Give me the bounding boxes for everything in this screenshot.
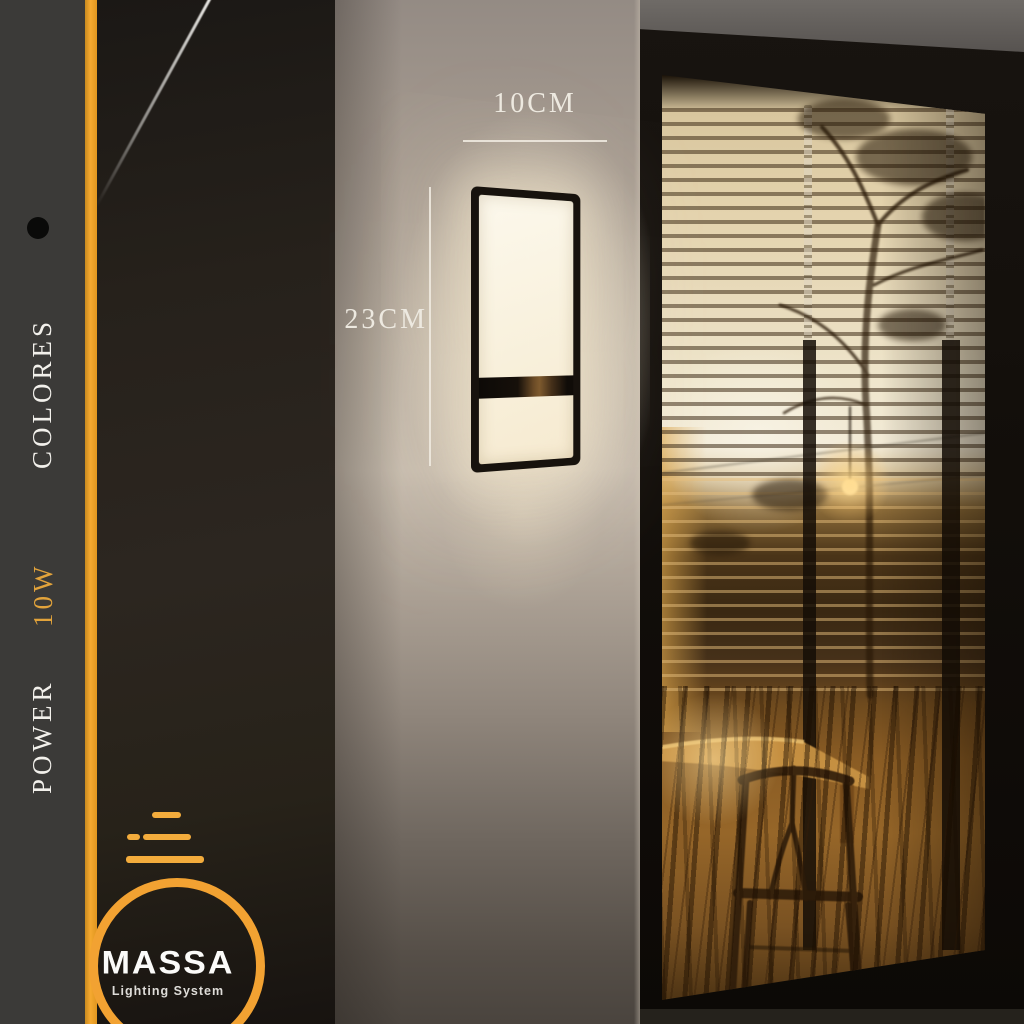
left-sidebar <box>0 0 85 1024</box>
accent-stripe <box>85 0 97 1024</box>
brand-tagline: Lighting System <box>86 984 250 998</box>
power-value: 10W <box>28 552 59 638</box>
window-edge-shade <box>662 75 985 1000</box>
window-sill <box>640 1009 1024 1024</box>
brand-name: MASSA <box>86 945 250 982</box>
product-photo-scene: 10CM 23CM COLORES 10W POWER MASSA Lighti… <box>0 0 1024 1024</box>
building-front-wall <box>335 0 640 1024</box>
power-label: POWER <box>27 660 58 813</box>
height-dimension-line <box>429 187 431 466</box>
beam-lines-icon <box>127 834 140 840</box>
bullet-dot-icon <box>27 217 49 239</box>
beam-lines-icon <box>126 856 204 863</box>
beam-lines-icon <box>152 812 181 818</box>
lamp-light-panel <box>479 195 573 465</box>
blinds-window <box>662 75 985 1000</box>
height-dimension-label: 23CM <box>330 304 428 336</box>
beam-lines-icon <box>143 834 191 840</box>
wall-lamp-product <box>471 186 580 473</box>
width-dimension-label: 10CM <box>455 88 615 120</box>
building-side-wall <box>97 0 335 1024</box>
lamp-center-band <box>479 375 573 398</box>
cable-highlight <box>90 0 214 216</box>
colores-label: COLORES <box>27 286 58 500</box>
width-dimension-line <box>463 140 607 142</box>
